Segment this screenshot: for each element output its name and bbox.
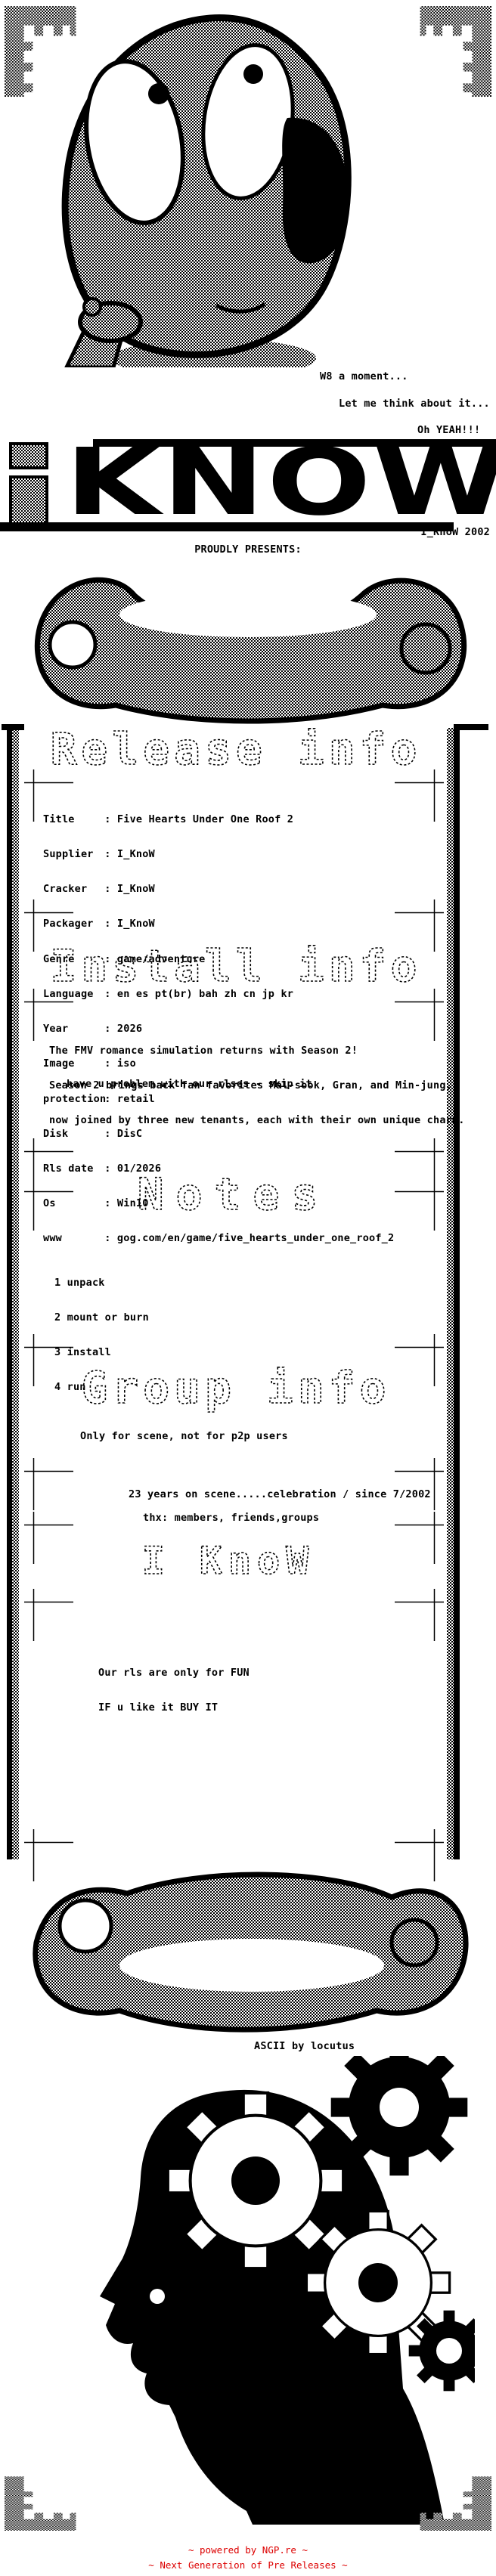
logo-letters: i KNOW — [9, 442, 400, 525]
release-info-header: Release info — [0, 728, 496, 776]
install-info-header: Install info — [0, 945, 496, 993]
release-field-label: Title — [43, 814, 104, 825]
corner-ornament-bottom-left — [5, 2475, 94, 2531]
separator: : — [104, 883, 117, 895]
group-scene-line: Only for scene, not for p2p users — [80, 1431, 288, 1442]
thought-line-2: Let me think about it... — [339, 398, 490, 410]
logo-word-know: KNOW — [65, 442, 496, 525]
footer-ngp-tagline: ~ Next Generation of Pre Releases ~ — [0, 2559, 496, 2571]
panel-border-left-dither — [12, 728, 19, 1859]
panel-border-left-black — [7, 728, 12, 1859]
scroll-bottom-art — [14, 1852, 482, 2045]
nfo-page: W8 a moment... Let me think about it... … — [0, 0, 496, 2576]
skip-note: have u problem with our rlses - skip it — [67, 1079, 312, 1090]
svg-text:Notes: Notes — [138, 1173, 330, 1220]
alien-left-pupil — [148, 83, 169, 104]
thought-line-1: W8 a moment... — [320, 371, 408, 382]
release-field-value: gog.com/en/game/five_hearts_under_one_ro… — [117, 1232, 394, 1244]
notes-header: Notes — [0, 1173, 496, 1221]
table-row: www: gog.com/en/game/five_hearts_under_o… — [43, 1233, 394, 1244]
alien-right-pupil — [243, 64, 263, 84]
group-info-header: Group info — [0, 1367, 496, 1415]
svg-text:Release info: Release info — [50, 728, 421, 775]
corner-ornament-top-right — [402, 6, 491, 100]
release-field-label: Packager — [43, 918, 104, 930]
separator: : — [104, 1232, 117, 1244]
separator: : — [104, 813, 117, 825]
release-field-label: Supplier — [43, 849, 104, 860]
svg-text:Group info: Group info — [81, 1367, 390, 1413]
crosshair-marks-right — [395, 769, 444, 1881]
logo-i-stem — [9, 475, 48, 525]
motto-line: Our rls are only for FUN — [98, 1667, 250, 1679]
list-item: 3 install — [54, 1347, 149, 1358]
release-field-value: Five Hearts Under One Roof 2 — [117, 813, 293, 825]
head-eye-dot — [150, 2289, 165, 2304]
panel-border-right-black — [454, 728, 460, 1859]
logo-bottom-bar — [0, 522, 454, 531]
iknow-motto: Our rls are only for FUN IF u like it BU… — [98, 1644, 250, 1737]
iknow-logo: i KNOW — [0, 439, 496, 531]
alien-thinking-art — [21, 5, 384, 367]
corner-ornament-bottom-right — [402, 2475, 491, 2531]
install-line: The FMV romance simulation returns with … — [49, 1045, 465, 1057]
release-field-value: I_KnoW — [117, 883, 155, 895]
svg-text:Install info: Install info — [50, 945, 421, 992]
logo-letter-i: i — [9, 442, 48, 525]
release-field-value: I_KnoW — [117, 918, 155, 930]
release-field-value: I_KnoW — [117, 848, 155, 860]
ascii-credit: ASCII by locutus — [254, 2041, 355, 2052]
release-field-label: www — [43, 1233, 104, 1244]
install-line: now joined by three new tenants, each wi… — [49, 1115, 465, 1126]
separator: : — [104, 848, 117, 860]
svg-text:I KnoW: I KnoW — [142, 1542, 315, 1583]
table-row: Packager: I_KnoW — [43, 918, 394, 930]
release-field-label: Cracker — [43, 884, 104, 895]
list-item: 1 unpack — [54, 1277, 149, 1289]
iknow-section-header: I KnoW — [0, 1542, 496, 1587]
group-anniversary-line: 23 years on scene.....celebration / sinc… — [129, 1489, 431, 1500]
motto-line: IF u like it BUY IT — [98, 1702, 250, 1714]
footer-powered-by: ~ powered by NGP.re ~ — [0, 2544, 496, 2556]
separator: : — [104, 918, 117, 930]
group-thanks-line: thx: members, friends,groups — [143, 1512, 319, 1524]
logo-credit: I_KnoW 2002 — [420, 527, 490, 538]
table-row: Cracker: I_KnoW — [43, 884, 394, 895]
table-row: Supplier: I_KnoW — [43, 849, 394, 860]
logo-i-dot — [9, 442, 48, 469]
head-with-gears-art — [21, 2056, 475, 2525]
table-row: Title: Five Hearts Under One Roof 2 — [43, 814, 394, 825]
scroll-top-art — [14, 554, 482, 732]
panel-border-right-dither — [447, 728, 454, 1859]
list-item: 2 mount or burn — [54, 1312, 149, 1324]
